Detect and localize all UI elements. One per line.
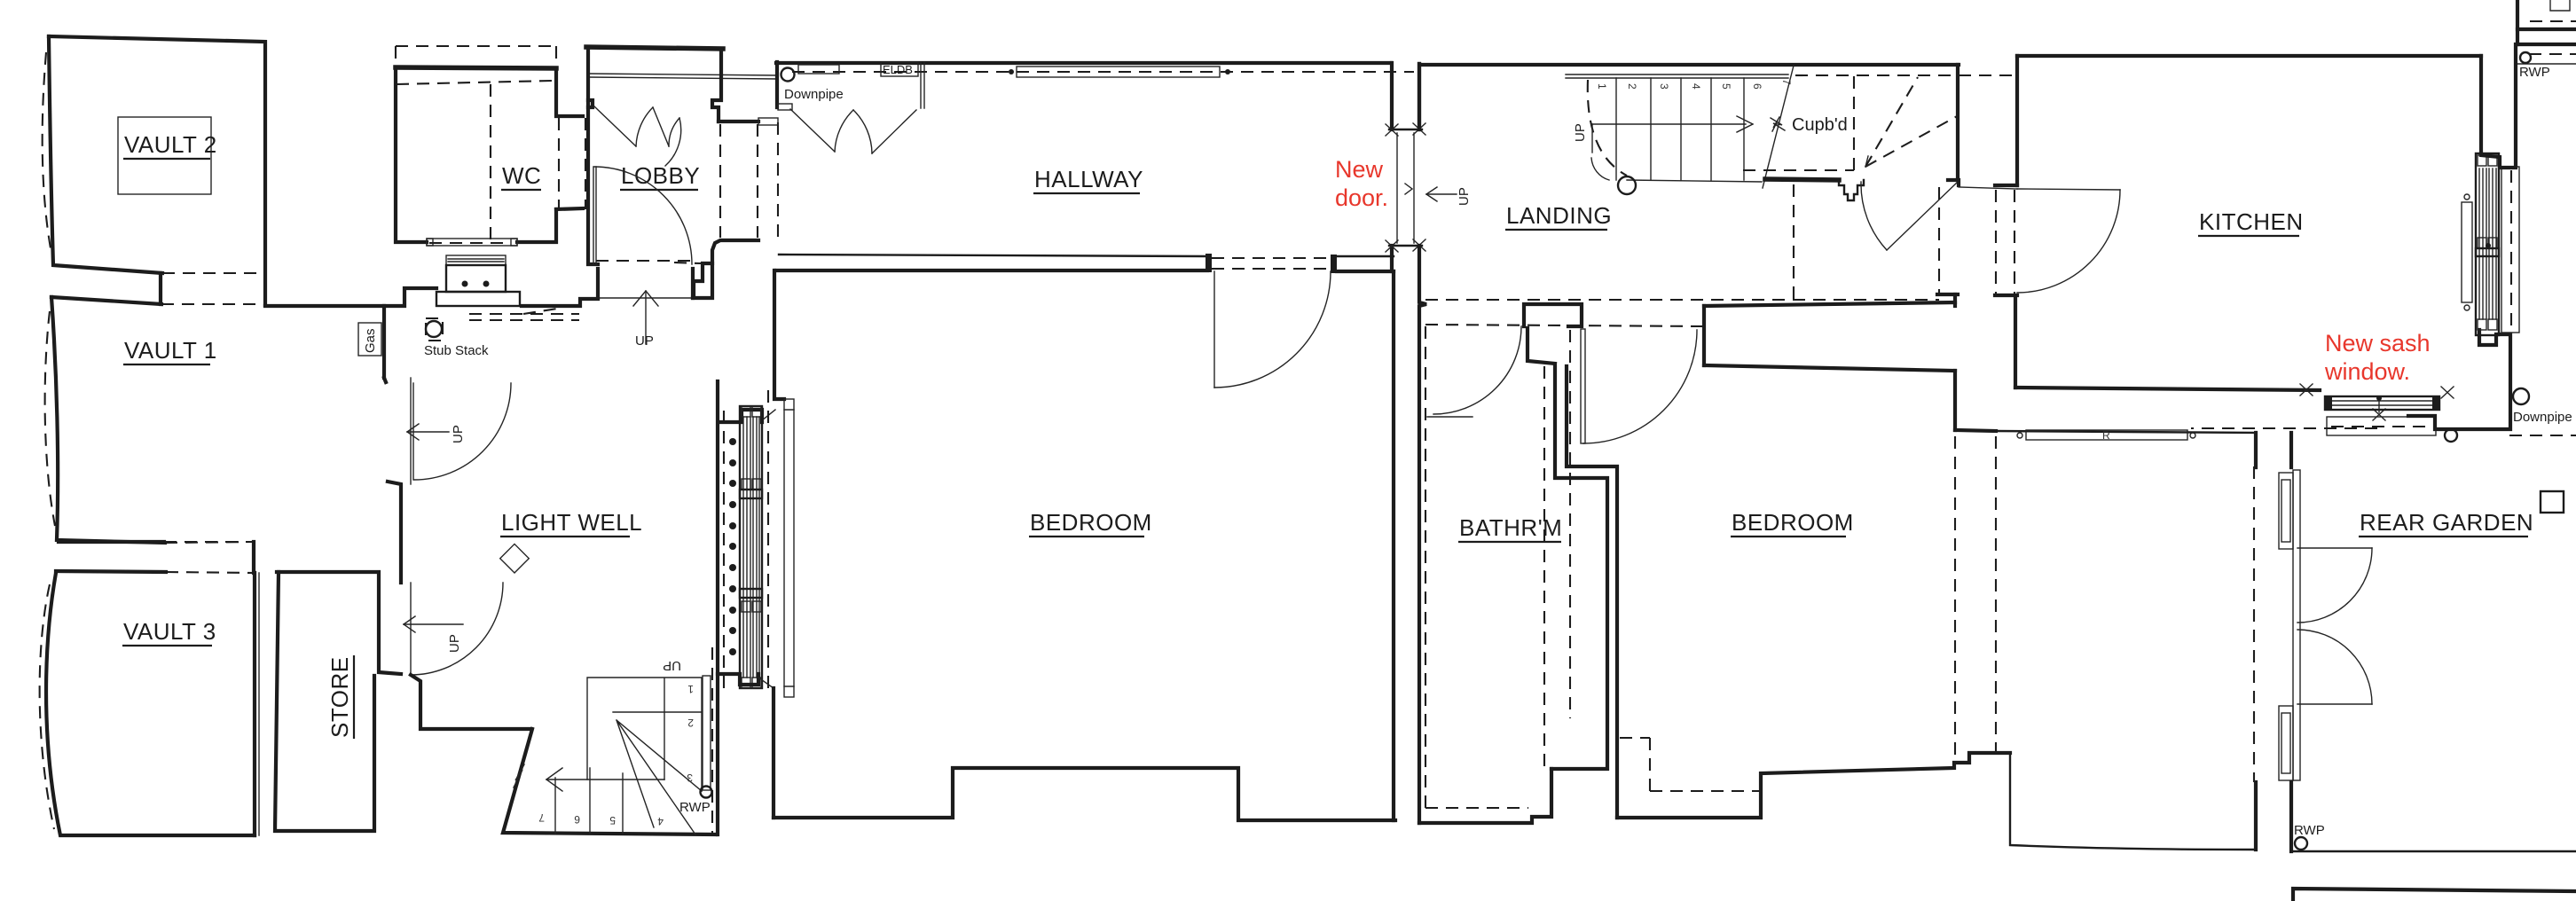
svg-text:UP: UP [635,333,654,349]
svg-text:UP: UP [663,658,681,673]
svg-text:5: 5 [1720,83,1732,90]
svg-text:3: 3 [687,772,693,784]
svg-text:VAULT 1: VAULT 1 [124,337,217,364]
svg-text:WC: WC [502,162,541,189]
svg-text:REAR GARDEN: REAR GARDEN [2360,509,2533,536]
svg-text:Gas: Gas [363,328,378,353]
svg-text:BEDROOM: BEDROOM [1030,509,1152,536]
svg-text:1: 1 [687,683,694,695]
svg-text:RWP: RWP [2519,65,2550,80]
svg-text:KITCHEN: KITCHEN [2199,208,2304,235]
svg-text:UP: UP [1457,187,1472,206]
svg-text:LOBBY: LOBBY [621,162,700,189]
svg-text:New sash: New sash [2325,330,2431,356]
svg-text:7: 7 [538,811,545,824]
svg-text:New: New [1335,156,1384,183]
svg-text:Cupb'd: Cupb'd [1792,115,1848,135]
svg-text:HALLWAY: HALLWAY [1034,166,1143,192]
svg-text:Downpipe: Downpipe [2513,410,2572,425]
svg-text:VAULT 2: VAULT 2 [124,131,217,158]
svg-text:7: 7 [1780,79,1793,85]
svg-text:4: 4 [657,815,664,827]
svg-text:ELDB: ELDB [883,63,913,76]
svg-text:RWP: RWP [2294,823,2325,838]
svg-text:4: 4 [1690,83,1702,90]
svg-text:2: 2 [1626,83,1638,90]
svg-text:6: 6 [574,813,580,826]
svg-text:UP: UP [447,634,462,653]
svg-text:LANDING: LANDING [1506,202,1612,229]
svg-text:RWP: RWP [679,800,711,815]
svg-text:Downpipe: Downpipe [784,87,844,102]
svg-text:UP: UP [451,425,466,443]
svg-text:door.: door. [1335,184,1388,211]
svg-text:Stub Stack: Stub Stack [424,343,489,358]
svg-text:LIGHT WELL: LIGHT WELL [501,509,642,536]
svg-text:6: 6 [1751,83,1763,90]
svg-text:window.: window. [2324,358,2410,385]
svg-text:3: 3 [1658,83,1670,90]
svg-text:BATHR'M: BATHR'M [1459,514,1562,541]
svg-text:R: R [2102,429,2110,442]
svg-text:VAULT 3: VAULT 3 [123,618,216,645]
svg-text:STORE: STORE [326,656,353,738]
svg-text:2: 2 [687,717,694,729]
svg-text:BEDROOM: BEDROOM [1732,509,1854,536]
svg-text:1: 1 [1596,83,1608,90]
svg-text:5: 5 [609,814,616,827]
svg-text:UP: UP [1573,123,1588,142]
